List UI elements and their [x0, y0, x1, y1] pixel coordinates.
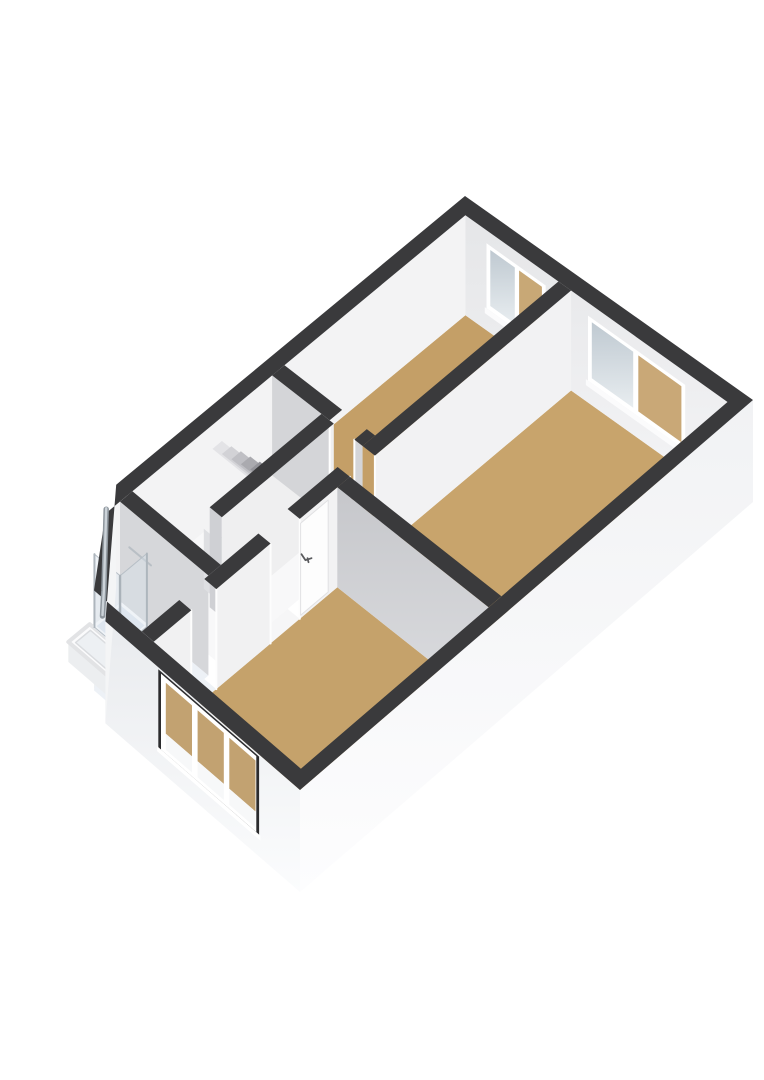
floorplan-3d-svg [0, 0, 764, 1080]
floorplan-canvas [0, 0, 764, 1080]
